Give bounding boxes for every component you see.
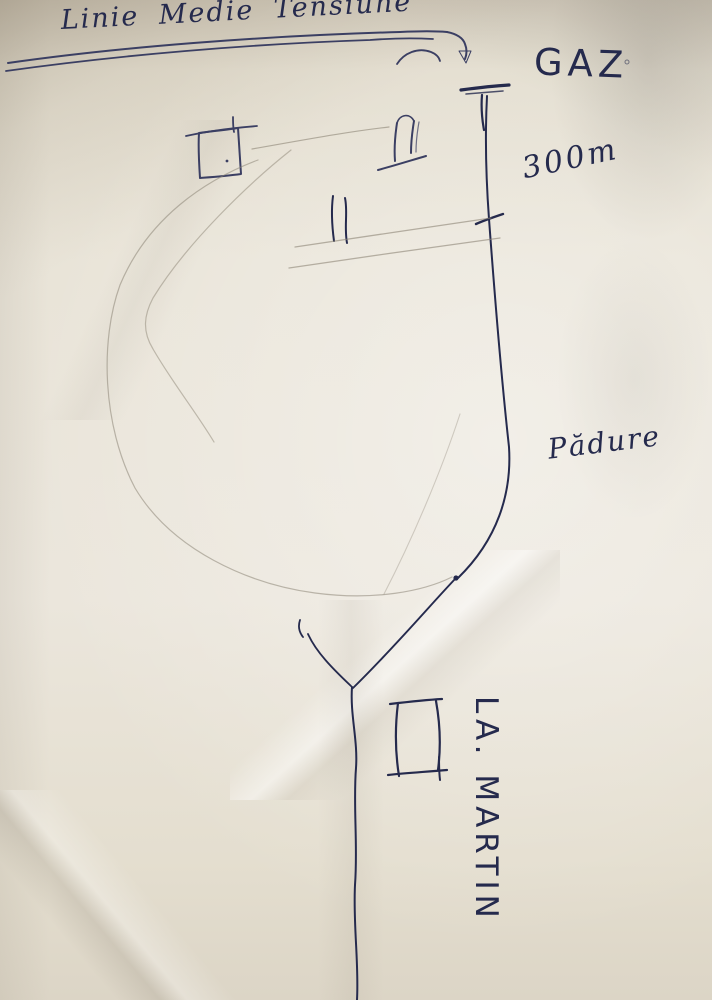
road-lines [252, 127, 500, 268]
gas-label: GAZ [533, 40, 629, 86]
power-line-swoosh [397, 50, 440, 64]
gate-right-leg-double [416, 122, 419, 152]
gas-post-inner-stroke [482, 95, 484, 130]
gate-left-leg [395, 123, 397, 161]
power-line-hook [447, 32, 467, 59]
forest-outer-curve [107, 160, 452, 596]
gate-top-curve [397, 116, 414, 123]
gate-right-leg [411, 121, 414, 153]
road-upper-line [295, 218, 491, 247]
route-right-side [458, 219, 509, 578]
road-lower-line [289, 238, 500, 268]
destination-label: LA. MARTIN [468, 696, 504, 923]
mid-post-ticks [332, 196, 347, 243]
building-bottom-edge [388, 770, 447, 775]
gate-base-line [378, 156, 426, 170]
gas-post-top-bar [461, 85, 509, 90]
route-diagonal [353, 578, 456, 688]
paper-sheet: Linie Medie Tensiune GAZ 300m Pădure LA.… [0, 0, 712, 1000]
pylon-left-box [186, 117, 257, 178]
forest-outline [107, 150, 460, 596]
pylon-right-gate [378, 116, 426, 170]
forest-scratch-line [384, 414, 460, 594]
route-stem [352, 687, 358, 1000]
pylon-box-dot [226, 160, 229, 163]
building-corner-tick [439, 757, 440, 780]
distance-segment-line [486, 96, 489, 219]
power-line-stroke [6, 31, 471, 71]
fork-left-branch [308, 634, 351, 686]
destination-box [388, 699, 447, 780]
building-left-edge [396, 703, 399, 776]
mid-tick-right [345, 198, 347, 243]
mid-tick-left [332, 196, 334, 241]
fork-tick [299, 620, 303, 637]
forest-inner-curve [145, 150, 291, 442]
pylon-box-top-tick [233, 117, 234, 132]
pylon-connector-line [252, 127, 389, 149]
gas-post-top-bar-double [466, 91, 503, 94]
